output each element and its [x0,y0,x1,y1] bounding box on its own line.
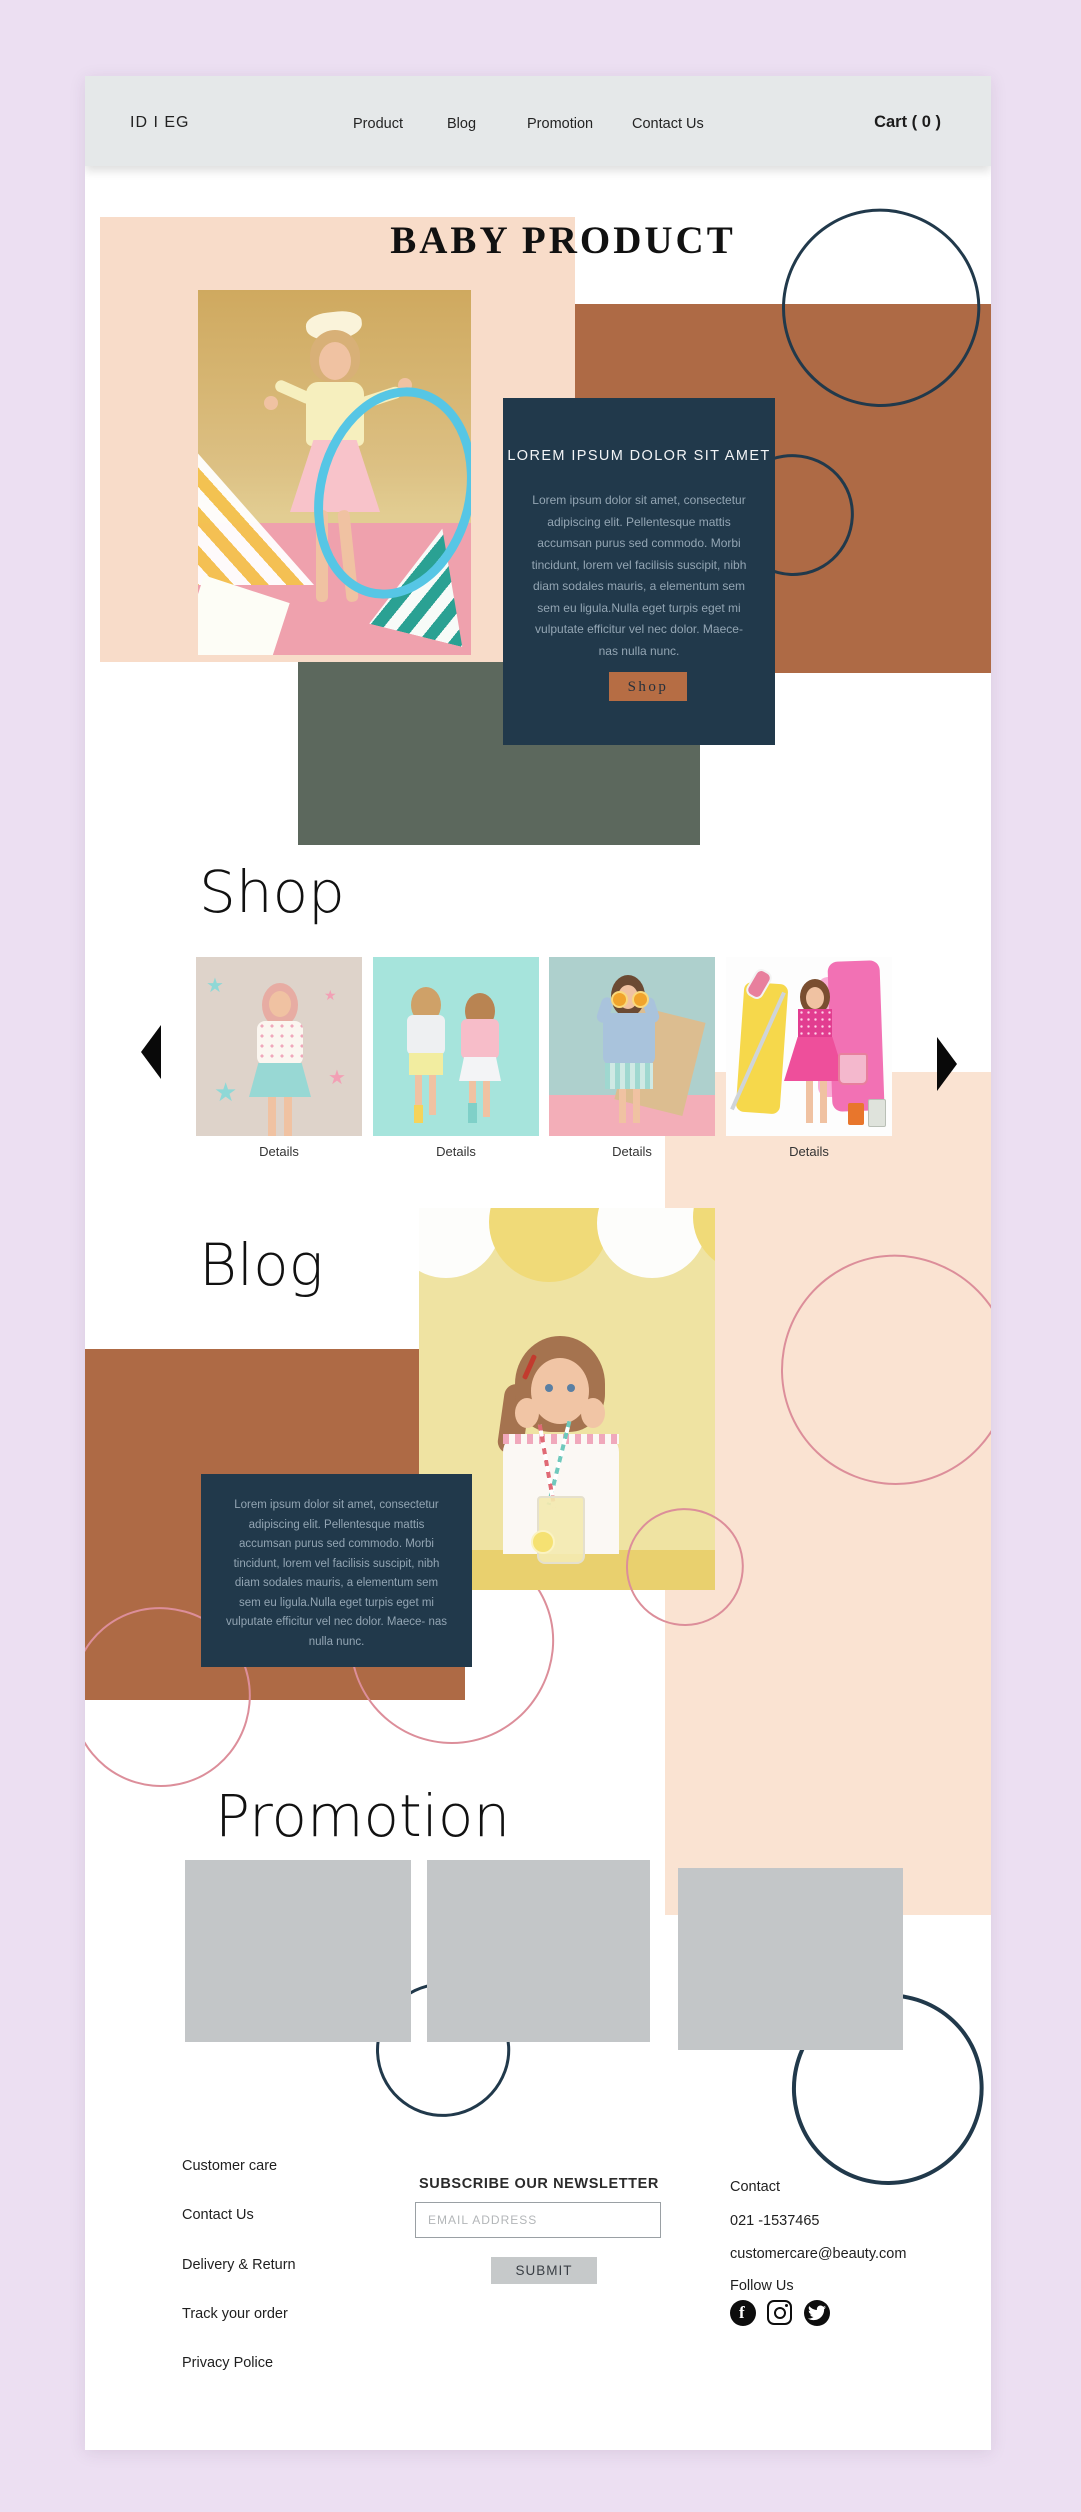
page-title: BABY PRODUCT [308,218,818,263]
contact-phone: 021 -1537465 [730,2213,820,2229]
photo-leg [483,1081,490,1117]
product-details-link-1[interactable]: Details [196,1144,362,1159]
promotion-placeholder-3 [678,1868,903,2050]
photo-shorts [409,1053,443,1075]
page-card: ID I EG Product Blog Promotion Contact U… [85,76,991,2450]
photo-leg [429,1075,436,1115]
email-input[interactable] [415,2202,661,2238]
nav-item-blog[interactable]: Blog [447,116,476,132]
hero-text-card: LOREM IPSUM DOLOR SIT AMET Lorem ipsum d… [503,398,775,745]
photo-face [269,991,291,1017]
hero-card-body: Lorem ipsum dolor sit amet, consectetur … [503,464,775,662]
chevron-right-icon[interactable] [937,1037,957,1091]
chevron-left-icon[interactable] [141,1025,161,1079]
twitter-icon[interactable] [804,2300,830,2326]
photo-face [319,342,351,380]
footer-link-contact-us[interactable]: Contact Us [182,2207,254,2223]
promotion-placeholder-2 [427,1860,650,2042]
hero-card-heading: LOREM IPSUM DOLOR SIT AMET [503,398,775,464]
photo-sock [414,1105,423,1123]
photo-leg [806,1081,813,1123]
submit-button[interactable]: SUBMIT [491,2257,597,2284]
photo-skirt [459,1057,501,1081]
photo-star: ★ [214,1077,237,1108]
photo-eye [545,1384,553,1392]
photo-top [461,1019,499,1059]
photo-bunting [489,1208,609,1282]
photo-star: ★ [206,973,224,998]
photo-bunting [597,1208,707,1278]
logo[interactable]: ID I EG [130,114,189,132]
photo-denim-jacket [603,1013,655,1065]
screen: ID I EG Product Blog Promotion Contact U… [0,0,1081,2512]
shop-button[interactable]: Shop [609,672,687,701]
photo-sock [468,1103,477,1123]
facebook-icon[interactable]: f [730,2300,756,2326]
photo-leg [619,1089,626,1123]
photo-leg [284,1097,292,1136]
product-details-link-2[interactable]: Details [373,1144,539,1159]
footer-link-privacy-police[interactable]: Privacy Police [182,2355,273,2371]
product-photo-1[interactable]: ★ ★ ★ ★ [196,957,362,1136]
photo-paint-can [848,1103,864,1125]
photo-leg [820,1081,827,1123]
photo-hand [515,1398,539,1428]
promotion-placeholder-1 [185,1860,411,2042]
product-details-link-4[interactable]: Details [726,1144,892,1159]
photo-paint-bucket [838,1053,868,1085]
product-photo-4[interactable] [726,957,892,1136]
nav-item-promotion[interactable]: Promotion [527,116,593,132]
contact-email: customercare@beauty.com [730,2246,906,2262]
instagram-icon[interactable] [767,2300,793,2326]
follow-us-label: Follow Us [730,2278,794,2294]
photo-star: ★ [328,1065,346,1090]
product-details-link-3[interactable]: Details [549,1144,715,1159]
photo-leg [633,1089,640,1123]
contact-heading: Contact [730,2179,780,2195]
photo-lemon-slice [531,1530,555,1554]
photo-leg [268,1097,276,1136]
photo-top [407,1015,445,1055]
promotion-section-heading: Promotion [215,1782,510,1850]
social-icons-row: f [730,2300,830,2326]
photo-skirt [605,1063,653,1089]
product-photo-2[interactable] [373,957,539,1136]
photo-hand [581,1398,605,1428]
footer-link-delivery-return[interactable]: Delivery & Return [182,2257,296,2273]
blog-card-body: Lorem ipsum dolor sit amet, consectetur … [201,1474,472,1652]
photo-face [806,987,824,1009]
newsletter-title: SUBSCRIBE OUR NEWSLETTER [405,2176,673,2192]
product-photo-3[interactable] [549,957,715,1136]
photo-paint-stroke-pink [827,960,884,1112]
photo-dress-bodice [798,1009,832,1039]
photo-star: ★ [324,987,337,1004]
header-bar: ID I EG Product Blog Promotion Contact U… [85,76,991,166]
nav-item-contact-us[interactable]: Contact Us [632,116,704,132]
cart-button[interactable]: Cart ( 0 ) [874,113,941,132]
photo-eye [567,1384,575,1392]
photo-hand [264,396,278,410]
photo-skirt [249,1063,311,1097]
nav-item-product[interactable]: Product [353,116,403,132]
photo-paint-can [868,1099,886,1127]
hero-photo-girl-hula-hoop [198,290,471,655]
photo-orange-slice [632,991,649,1008]
blog-section-heading: Blog [199,1231,323,1299]
blog-text-card: Lorem ipsum dolor sit amet, consectetur … [201,1474,472,1667]
footer-link-customer-care[interactable]: Customer care [182,2158,277,2174]
photo-orange-slice [611,991,628,1008]
photo-top [257,1021,303,1065]
footer-link-track-order[interactable]: Track your order [182,2306,288,2322]
shop-section-heading: Shop [199,858,345,926]
